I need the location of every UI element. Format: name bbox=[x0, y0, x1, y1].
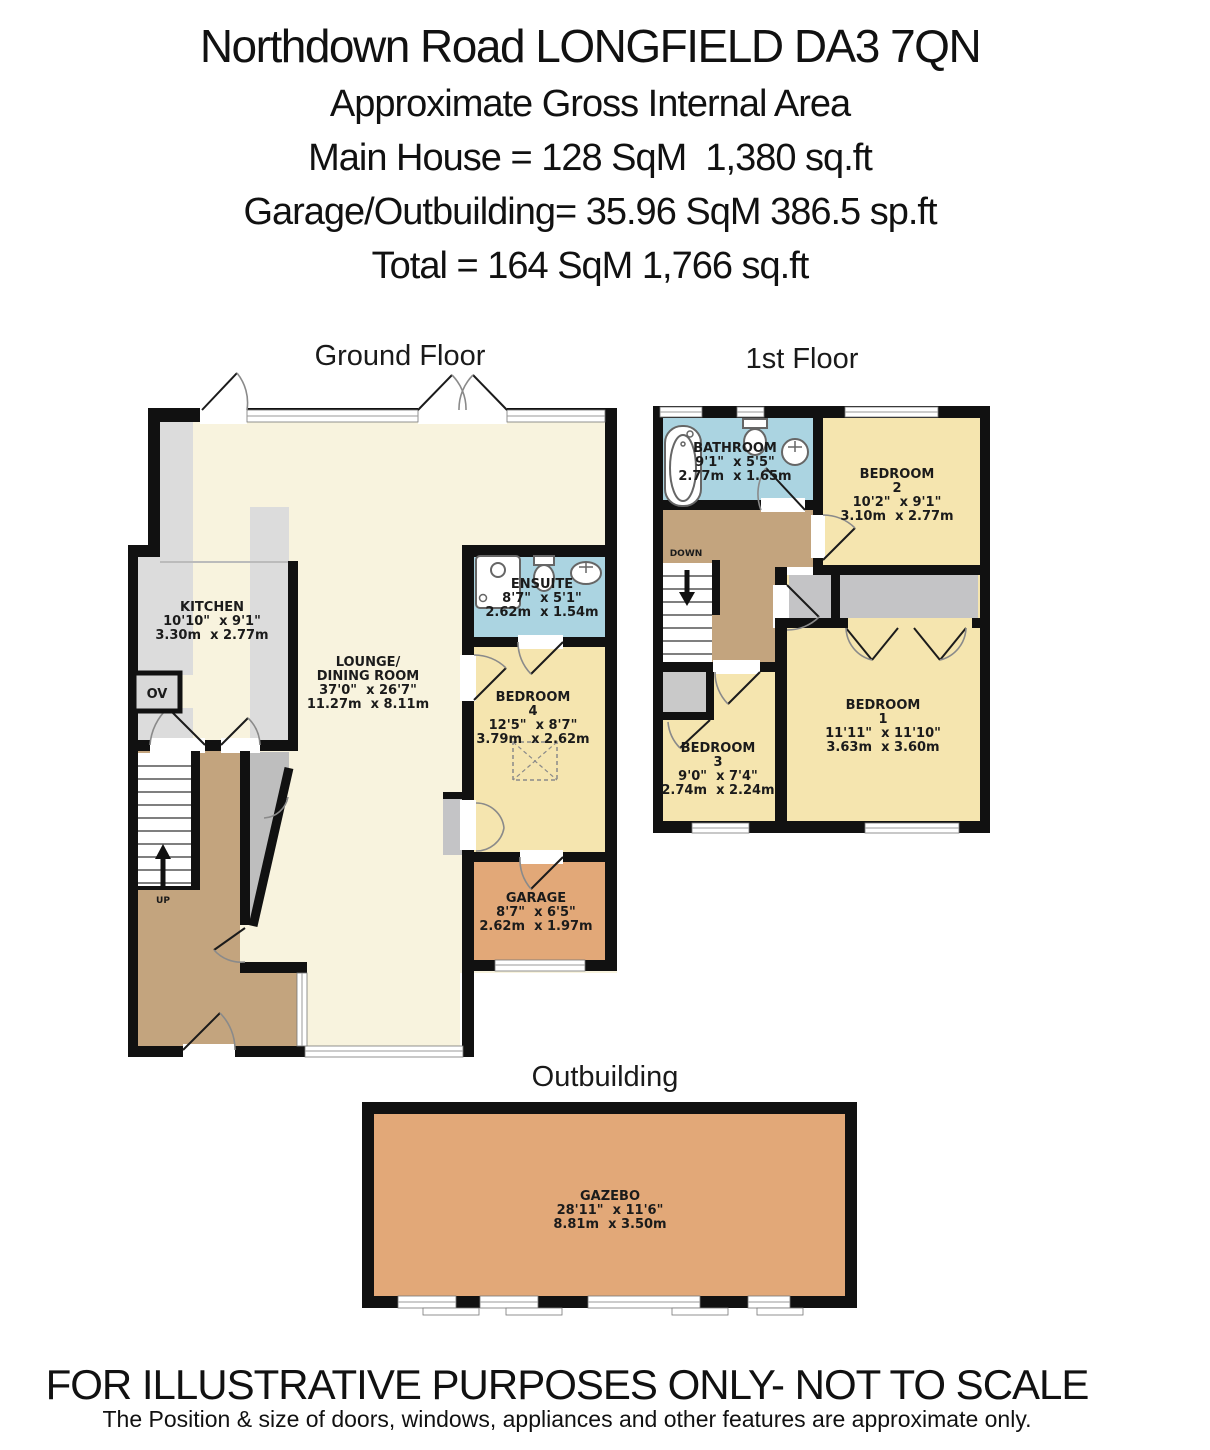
lounge-name1: LOUNGE/ bbox=[336, 655, 401, 670]
window bbox=[305, 1046, 463, 1057]
window bbox=[737, 407, 764, 417]
garage-imperial: 8'7" x 6'5" bbox=[496, 905, 576, 920]
bathroom-imperial: 9'1" x 5'5" bbox=[695, 455, 775, 470]
bedroom3-name: BEDROOM bbox=[681, 741, 756, 756]
window bbox=[247, 410, 418, 422]
window bbox=[692, 823, 749, 833]
page-title: Northdown Road LONGFIELD DA3 7QN bbox=[200, 20, 980, 72]
bedroom1-wardrobe-left bbox=[789, 575, 831, 618]
window bbox=[480, 1296, 538, 1308]
staircase-down bbox=[663, 563, 712, 667]
bedroom1-metric: 3.63m x 3.60m bbox=[826, 740, 939, 755]
window bbox=[588, 1296, 700, 1308]
bedroom4-number: 4 bbox=[528, 704, 537, 719]
gazebo-name: GAZEBO bbox=[580, 1189, 640, 1204]
bedroom3-number: 3 bbox=[713, 755, 722, 770]
ground-floor-plan: OV KITCHEN 10'10" x 9'1" 3.30m x 2.77m L… bbox=[128, 373, 617, 1059]
bedroom1-imperial: 11'11" x 11'10" bbox=[825, 726, 941, 741]
first-floor-title: 1st Floor bbox=[746, 343, 859, 375]
bedroom3-imperial: 9'0" x 7'4" bbox=[678, 769, 758, 784]
bedroom1-number: 1 bbox=[878, 712, 887, 727]
bedroom4-metric: 3.79m x 2.62m bbox=[476, 732, 589, 747]
outbuilding-title: Outbuilding bbox=[532, 1061, 679, 1093]
gazebo-metric: 8.81m x 3.50m bbox=[553, 1217, 666, 1232]
floorplan-page: Northdown Road LONGFIELD DA3 7QN Approxi… bbox=[0, 0, 1210, 1450]
bedroom4-name: BEDROOM bbox=[496, 690, 571, 705]
oven-unit: OV bbox=[134, 673, 180, 711]
window bbox=[845, 407, 938, 417]
footer-block: FOR ILLUSTRATIVE PURPOSES ONLY- NOT TO S… bbox=[46, 1361, 1089, 1432]
window bbox=[865, 823, 959, 833]
ensuite-name: ENSUITE bbox=[511, 577, 573, 592]
lounge-imperial: 37'0" x 26'7" bbox=[319, 683, 417, 698]
footer-note: The Position & size of doors, windows, a… bbox=[102, 1406, 1031, 1432]
bedroom2-imperial: 10'2" x 9'1" bbox=[853, 495, 942, 510]
bedroom1-wardrobe-right bbox=[840, 575, 978, 618]
kitchen-name: KITCHEN bbox=[180, 600, 244, 615]
lounge-metric: 11.27m x 8.11m bbox=[307, 697, 429, 712]
bedroom1-name: BEDROOM bbox=[846, 698, 921, 713]
ground-floor-title: Ground Floor bbox=[315, 340, 486, 372]
sink-icon bbox=[571, 562, 601, 584]
window bbox=[297, 973, 307, 1046]
room-bedroom4 bbox=[474, 645, 605, 852]
bedroom3-metric: 2.74m x 2.24m bbox=[661, 783, 774, 798]
up-label: UP bbox=[156, 896, 170, 906]
oven-label: OV bbox=[147, 687, 168, 702]
header-garage-outbuilding: Garage/Outbuilding= 35.96 SqM 386.5 sp.f… bbox=[243, 191, 938, 233]
gazebo-imperial: 28'11" x 11'6" bbox=[557, 1203, 664, 1218]
lounge-cupboard bbox=[443, 799, 462, 855]
bedroom4-imperial: 12'5" x 8'7" bbox=[489, 718, 578, 733]
staircase-up bbox=[134, 753, 191, 888]
window bbox=[398, 1296, 456, 1308]
bathroom-metric: 2.77m x 1.65m bbox=[678, 469, 791, 484]
ensuite-metric: 2.62m x 1.54m bbox=[485, 605, 598, 620]
first-floor-plan: BATHROOM 9'1" x 5'5" 2.77m x 1.65m BEDRO… bbox=[653, 406, 990, 833]
garage-metric: 2.62m x 1.97m bbox=[479, 919, 592, 934]
header-subtitle: Approximate Gross Internal Area bbox=[330, 83, 852, 125]
down-label: DOWN bbox=[670, 549, 703, 559]
footer-disclaimer: FOR ILLUSTRATIVE PURPOSES ONLY- NOT TO S… bbox=[46, 1361, 1089, 1408]
header-main-house: Main House = 128 SqM 1,380 sq.ft bbox=[308, 137, 873, 179]
window bbox=[660, 407, 702, 417]
bedroom2-name: BEDROOM bbox=[860, 467, 935, 482]
sink-icon bbox=[782, 439, 808, 465]
bedroom2-number: 2 bbox=[892, 481, 901, 496]
bedroom3-closet bbox=[663, 672, 710, 716]
kitchen-metric: 3.30m x 2.77m bbox=[155, 628, 268, 643]
floorplan-canvas: Northdown Road LONGFIELD DA3 7QN Approxi… bbox=[0, 0, 1210, 1450]
bedroom2-metric: 3.10m x 2.77m bbox=[840, 509, 953, 524]
header-block: Northdown Road LONGFIELD DA3 7QN Approxi… bbox=[200, 20, 980, 287]
garage-name: GARAGE bbox=[506, 891, 566, 906]
kitchen-divider-line bbox=[160, 561, 290, 563]
header-total: Total = 164 SqM 1,766 sq.ft bbox=[372, 245, 810, 287]
outbuilding-plan: GAZEBO 28'11" x 11'6" 8.81m x 3.50m bbox=[362, 1102, 857, 1315]
kitchen-counter-left-upper bbox=[160, 422, 193, 557]
window bbox=[507, 410, 605, 422]
ensuite-imperial: 8'7" x 5'1" bbox=[502, 591, 582, 606]
bathroom-name: BATHROOM bbox=[693, 441, 777, 456]
window bbox=[748, 1296, 790, 1308]
lounge-name2: DINING ROOM bbox=[317, 669, 419, 684]
kitchen-imperial: 10'10" x 9'1" bbox=[163, 614, 261, 629]
garage-door bbox=[495, 960, 585, 971]
